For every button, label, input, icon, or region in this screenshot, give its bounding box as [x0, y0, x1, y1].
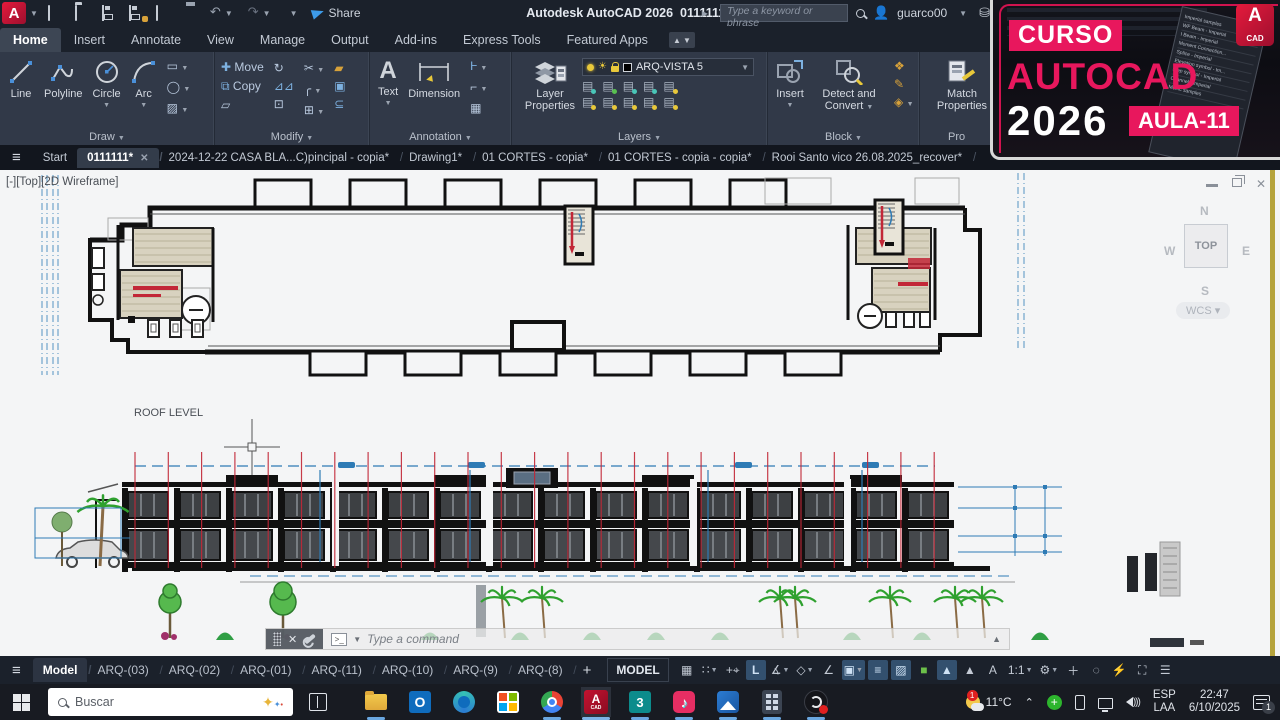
- rectangle-icon[interactable]: ▭ ▼: [167, 60, 191, 75]
- command-customize-wrench-icon[interactable]: [304, 634, 316, 645]
- command-expand-icon[interactable]: ▲: [992, 634, 1001, 644]
- viewport-window-controls: ✕: [1206, 178, 1266, 190]
- tab-addins[interactable]: Add-ins: [382, 28, 450, 52]
- model-space-toggle[interactable]: MODEL: [607, 658, 668, 682]
- outlook-button[interactable]: O: [405, 687, 435, 717]
- explode-icon[interactable]: ▣: [334, 80, 345, 92]
- command-placeholder: Type a command: [367, 632, 459, 646]
- mirror-icon[interactable]: ⊿⊿: [274, 80, 294, 92]
- command-close-icon[interactable]: ✕: [288, 633, 297, 646]
- app-menu-icon[interactable]: A: [2, 2, 26, 24]
- annotation-panel-label[interactable]: Annotation ▼: [370, 131, 511, 143]
- panel-annotation: A Text▼ Dimension Ⱶ ▼ ⌐ ▼ ▦ Annotation ▼: [370, 52, 512, 145]
- restore-icon[interactable]: [1232, 178, 1242, 187]
- modify-col3: ✂ ▼ ╭ ▼ ⊞ ▼: [304, 61, 324, 119]
- layer-tools-row2: ▤ ▤ ▤ ▤ ▤: [582, 97, 754, 108]
- file-tab-0111111[interactable]: 0111111*✕: [77, 148, 158, 168]
- layout-tab-arq9[interactable]: ARQ-(9): [443, 658, 508, 682]
- windows-taskbar: Buscar ✦✦• O ACAD 3 ♪ 1 11°C ⌃ +: [0, 684, 1280, 720]
- command-line-controls: ✕: [266, 629, 323, 649]
- match-properties-icon: [947, 59, 977, 85]
- panel-draw: Line Polyline Circle▼ Arc▼ ▭ ▼ ◯ ▼ ▨ ▼ D…: [0, 52, 215, 145]
- block-attributes-icon[interactable]: ◈ ▼: [894, 96, 914, 111]
- promo-lesson-badge: AULA-11: [1129, 106, 1239, 136]
- viewcube-north[interactable]: N: [1200, 204, 1209, 218]
- chrome-button[interactable]: [537, 687, 567, 717]
- layer-unisolate-icon[interactable]: ▤: [602, 81, 613, 92]
- insert-block-icon: [776, 59, 804, 85]
- antivirus-tray-icon[interactable]: +: [1047, 695, 1062, 710]
- circle-icon: [94, 59, 120, 85]
- modify-col2: ↻ ⊿⊿ ⊡: [274, 61, 294, 119]
- minimize-icon[interactable]: [1206, 184, 1218, 187]
- dimension-icon: [417, 59, 451, 85]
- create-block-icon[interactable]: ❖: [894, 60, 914, 72]
- tab-home[interactable]: Home: [0, 28, 61, 52]
- layer-isolate-icon[interactable]: ▤: [582, 81, 593, 92]
- quick-access-toolbar: ↶▼ ↷▼ ▼: [48, 5, 302, 21]
- leader-icon[interactable]: Ⱶ ▼: [470, 60, 487, 75]
- move-button[interactable]: ✚ Move: [221, 61, 264, 73]
- layout-tab-arq10[interactable]: ARQ-(10): [372, 658, 443, 682]
- share-button[interactable]: Share: [312, 6, 361, 20]
- search-icon[interactable]: [856, 9, 865, 18]
- edge-button[interactable]: [449, 687, 479, 717]
- open-file-icon[interactable]: [75, 6, 91, 20]
- promo-brand: AUTOCAD: [1007, 56, 1198, 98]
- app-store-cart-icon[interactable]: ⛁: [979, 5, 990, 21]
- taskbar-apps: O ACAD 3 ♪: [361, 687, 831, 717]
- layer-on-icon[interactable]: [587, 64, 594, 71]
- modify-panel-label[interactable]: Modify ▼: [215, 131, 369, 143]
- layer-off-icon[interactable]: ▤: [582, 97, 593, 108]
- autocad-window: A ▼ ↶▼ ↷▼ ▼ Share Autodesk AutoCAD 2026 …: [0, 0, 1280, 720]
- file-tab-start[interactable]: Start: [33, 148, 77, 168]
- ribbon-collapse-button[interactable]: ▲▼: [669, 32, 695, 48]
- scale-icon[interactable]: ⊡: [274, 98, 294, 110]
- obs-button[interactable]: [801, 687, 831, 717]
- file-tab-rooi-santo[interactable]: Rooi Santo vico 26.08.2025_recover*: [762, 148, 973, 168]
- layer-dropdown-chevron-icon[interactable]: ▼: [741, 63, 749, 72]
- clean-screen-toggle[interactable]: ⛶: [1132, 660, 1152, 680]
- command-line-bar[interactable]: ✕ >_ ▼ Type a command ▲: [265, 628, 1010, 650]
- detect-convert-icon: [835, 59, 863, 85]
- stretch-icon[interactable]: ▱: [221, 99, 264, 111]
- status-toggles: ▦ ∷▼ +⌖ L ∡▼ ◇▼ ∠ ▣▼ ≡ ▨ ■ ▲ ▲ A 1:1▼ ⚙▼…: [677, 660, 1175, 680]
- autocad-taskbar-button[interactable]: ACAD: [581, 687, 611, 717]
- taskbar-search-icon: [58, 698, 67, 707]
- tab-express-tools[interactable]: Express Tools: [450, 28, 554, 52]
- model-space-drawing: ROOF LEVEL: [0, 170, 1280, 656]
- layout-tab-model[interactable]: Model: [33, 658, 88, 682]
- close-tab-icon[interactable]: ✕: [140, 153, 148, 164]
- grid-display-toggle[interactable]: ▦: [677, 660, 697, 680]
- panel-layers: Layer Properties ☀ ARQ-VISTA 5 ▼ ▤ ▤ ▤ ▤…: [512, 52, 768, 145]
- layer-thaw-icon[interactable]: ☀: [598, 62, 607, 72]
- photos-button[interactable]: [713, 687, 743, 717]
- ellipse-icon[interactable]: ◯ ▼: [167, 81, 191, 96]
- language-indicator[interactable]: ESPLAA: [1153, 689, 1176, 715]
- autocad-logo-badge: ACAD: [1236, 4, 1274, 46]
- panel-modify: ✚ Move ⧉ Copy ▱ ↻ ⊿⊿ ⊡ ✂ ▼ ╭ ▼ ⊞ ▼ ▰ ▣: [215, 52, 370, 145]
- start-button[interactable]: [13, 694, 30, 711]
- svg-text:ROOF LEVEL: ROOF LEVEL: [134, 407, 203, 419]
- save-icon[interactable]: [102, 6, 118, 20]
- share-icon: [310, 6, 325, 19]
- block-panel-label[interactable]: Block ▼: [768, 131, 919, 143]
- fillet-icon[interactable]: ╭ ▼: [304, 83, 324, 98]
- viewcube-west[interactable]: W: [1164, 244, 1175, 258]
- graphics-performance-toggle[interactable]: ⚡: [1109, 660, 1129, 680]
- command-prompt-icon: >_: [331, 633, 347, 646]
- viewcube: N W TOP E S WCS ▾: [1162, 202, 1252, 322]
- layout-tab-arq11[interactable]: ARQ-(11): [301, 658, 371, 682]
- command-input[interactable]: >_ ▼ Type a command: [323, 632, 467, 646]
- layer-match-icon[interactable]: ▤: [602, 97, 613, 108]
- object-snap-toggle[interactable]: ▣▼: [842, 660, 865, 680]
- annotation-visibility-toggle[interactable]: ▲: [937, 660, 957, 680]
- user-menu-chevron-icon[interactable]: ▼: [959, 9, 967, 18]
- layout-tab-arq01[interactable]: ARQ-(01): [230, 658, 301, 682]
- search-history-icon[interactable]: ▶: [702, 9, 708, 18]
- customization-menu-icon[interactable]: ☰: [1155, 660, 1175, 680]
- file-explorer-button[interactable]: [361, 687, 391, 717]
- app-menu-chevron-icon[interactable]: ▼: [30, 9, 38, 18]
- signed-in-user[interactable]: guarco00: [897, 6, 947, 20]
- viewport-controls-label[interactable]: [-][Top][2D Wireframe]: [6, 176, 118, 188]
- file-tab-cortes-copia-copia[interactable]: 01 CORTES - copia - copia*: [598, 148, 762, 168]
- microsoft-store-button[interactable]: [493, 687, 523, 717]
- promo-year: 2026: [1007, 97, 1108, 145]
- network-tray-icon[interactable]: [1098, 698, 1113, 709]
- selection-cycling-toggle[interactable]: ■: [914, 660, 934, 680]
- draw-panel-label[interactable]: Draw ▼: [0, 131, 214, 143]
- layout-tab-arq03[interactable]: ARQ-(03): [87, 658, 158, 682]
- snap-mode-toggle[interactable]: ∷▼: [700, 660, 720, 680]
- task-view-button[interactable]: [309, 693, 327, 711]
- new-file-icon[interactable]: [48, 6, 64, 20]
- promo-video-overlay: Imperial samplesWF Beam - Imperial I Bea…: [990, 0, 1280, 160]
- current-layer-name: ARQ-VISTA 5: [636, 61, 703, 73]
- ortho-mode-toggle[interactable]: L: [746, 660, 766, 680]
- viewcube-top-face[interactable]: TOP: [1184, 224, 1228, 268]
- line-icon: [8, 59, 34, 85]
- qat-customize-icon[interactable]: ▼: [290, 9, 298, 18]
- isometric-drafting-toggle[interactable]: ◇▼: [794, 660, 815, 680]
- weather-widget[interactable]: 1 11°C: [966, 695, 1012, 709]
- arc-icon: [131, 59, 157, 85]
- array-icon[interactable]: ⊞ ▼: [304, 104, 324, 119]
- layer-unlock2-icon[interactable]: ▤: [643, 97, 654, 108]
- file-tab-drawing1[interactable]: Drawing1*: [399, 148, 472, 168]
- hatch-icon[interactable]: ▨ ▼: [167, 102, 191, 117]
- drawing-canvas[interactable]: ROOF LEVEL [-][Top][2D Wireframe] ✕ N W …: [0, 170, 1280, 656]
- print-icon[interactable]: [183, 6, 199, 20]
- tab-annotate[interactable]: Annotate: [118, 28, 194, 52]
- workspace-switching-gear-icon[interactable]: ⚙▼: [1038, 660, 1061, 680]
- copy-button[interactable]: ⧉ Copy: [221, 80, 264, 92]
- taskbar-search-input[interactable]: Buscar ✦✦•: [48, 688, 293, 716]
- layers-panel-label[interactable]: Layers ▼: [512, 131, 767, 143]
- layer-lock-icon[interactable]: ▤: [643, 81, 654, 92]
- trim-icon[interactable]: ✂ ▼: [304, 62, 324, 77]
- layer-states-icon[interactable]: ▤: [663, 81, 674, 92]
- command-recent-chevron-icon[interactable]: ▼: [353, 635, 361, 644]
- command-drag-handle[interactable]: [273, 632, 281, 646]
- table-icon[interactable]: ▦: [470, 102, 487, 114]
- 3dsmax-button[interactable]: 3: [625, 687, 655, 717]
- layout-menu-icon[interactable]: ≡: [0, 662, 33, 679]
- undo-icon[interactable]: ↶▼: [210, 5, 237, 21]
- layout-tab-arq8[interactable]: ARQ-(8): [508, 658, 573, 682]
- layer-properties-icon: [533, 59, 567, 85]
- transparency-toggle[interactable]: ▨: [891, 660, 911, 680]
- layer-freeze-icon[interactable]: ▤: [623, 81, 634, 92]
- taskbar-search-placeholder: Buscar: [75, 695, 114, 709]
- file-tab-cortes-copia[interactable]: 01 CORTES - copia*: [472, 148, 598, 168]
- tab-output[interactable]: Output: [318, 28, 382, 52]
- tab-featured-apps[interactable]: Featured Apps: [554, 28, 661, 52]
- clock[interactable]: 22:476/10/2025: [1189, 689, 1240, 715]
- annotation-monitor-toggle[interactable]: ＋: [1063, 660, 1083, 680]
- save-as-icon[interactable]: [129, 6, 145, 20]
- tiktok-button[interactable]: ♪: [669, 687, 699, 717]
- multileader-icon[interactable]: ⌐ ▼: [470, 81, 487, 96]
- text-icon: A: [379, 59, 396, 83]
- modify-col4: ▰ ▣ ⊆: [334, 61, 345, 119]
- notification-center-icon[interactable]: 1: [1253, 695, 1270, 710]
- isolate-objects-toggle[interactable]: ◌: [1086, 660, 1106, 680]
- close-icon[interactable]: ✕: [1256, 178, 1266, 190]
- tray-expand-chevron-icon[interactable]: ⌃: [1025, 696, 1034, 709]
- layer-unlock-icon[interactable]: [611, 66, 619, 72]
- file-tab-menu-icon[interactable]: ≡: [0, 149, 33, 166]
- user-avatar-icon[interactable]: 👤: [873, 5, 889, 21]
- viewcube-south[interactable]: S: [1201, 284, 1209, 298]
- offset-icon[interactable]: ⊆: [334, 98, 345, 110]
- promo-kicker: CURSO: [1009, 20, 1122, 51]
- weather-badge: 1: [967, 690, 978, 701]
- plot-icon[interactable]: [156, 6, 172, 20]
- edit-block-icon[interactable]: ✎: [894, 78, 914, 90]
- video-edge-strip: [1270, 170, 1275, 656]
- polar-tracking-toggle[interactable]: ∡▼: [769, 660, 792, 680]
- dynamic-input-toggle[interactable]: +⌖: [723, 660, 743, 680]
- tab-insert[interactable]: Insert: [61, 28, 118, 52]
- layer-dropdown[interactable]: ☀ ARQ-VISTA 5 ▼: [582, 58, 754, 76]
- redo-icon[interactable]: ↷▼: [248, 5, 275, 21]
- layout-tab-arq02[interactable]: ARQ-(02): [159, 658, 230, 682]
- lineweight-toggle[interactable]: ≡: [868, 660, 888, 680]
- copilot-sparkle-icon: ✦✦•: [262, 694, 283, 711]
- calculator-button[interactable]: [757, 687, 787, 717]
- help-search-input[interactable]: Type a keyword or phrase: [720, 4, 848, 22]
- viewcube-east[interactable]: E: [1242, 244, 1250, 258]
- annotation-scale-value[interactable]: 1:1▼: [1006, 660, 1035, 680]
- titlebar-right: ▶ Type a keyword or phrase 👤 guarco00 ▼ …: [698, 4, 990, 22]
- rotate-icon[interactable]: ↻: [274, 62, 294, 74]
- file-tab-casa[interactable]: 2024-12-22 CASA BLA...C)pincipal - copia…: [159, 148, 400, 168]
- tab-view[interactable]: View: [194, 28, 247, 52]
- viewcube-wcs-menu[interactable]: WCS ▾: [1176, 302, 1230, 319]
- system-tray: 1 11°C ⌃ + ))) ESPLAA 22:476/10/2025 1: [966, 689, 1280, 715]
- share-label: Share: [329, 6, 361, 20]
- temperature: 11°C: [986, 695, 1012, 709]
- phone-link-tray-icon[interactable]: [1075, 695, 1085, 710]
- layer-tools-row1: ▤ ▤ ▤ ▤ ▤: [582, 81, 754, 92]
- tab-manage[interactable]: Manage: [247, 28, 318, 52]
- erase-icon[interactable]: ▰: [334, 62, 345, 74]
- annotation-scale-icon[interactable]: A: [983, 660, 1003, 680]
- object-snap-tracking-toggle[interactable]: ∠: [819, 660, 839, 680]
- volume-tray-icon[interactable]: ))): [1126, 697, 1140, 708]
- status-bar: ≡ Model ARQ-(03) ARQ-(02) ARQ-(01) ARQ-(…: [0, 656, 1280, 684]
- panel-block: Insert▼ Detect and Convert ▼ ❖ ✎ ◈ ▼ Blo…: [768, 52, 920, 145]
- annotation-autoscale-toggle[interactable]: ▲: [960, 660, 980, 680]
- layer-current-icon[interactable]: ▤: [623, 97, 634, 108]
- layer-color-swatch[interactable]: [623, 63, 632, 72]
- layer-walk-icon[interactable]: ▤: [663, 97, 674, 108]
- polyline-icon: [50, 59, 76, 85]
